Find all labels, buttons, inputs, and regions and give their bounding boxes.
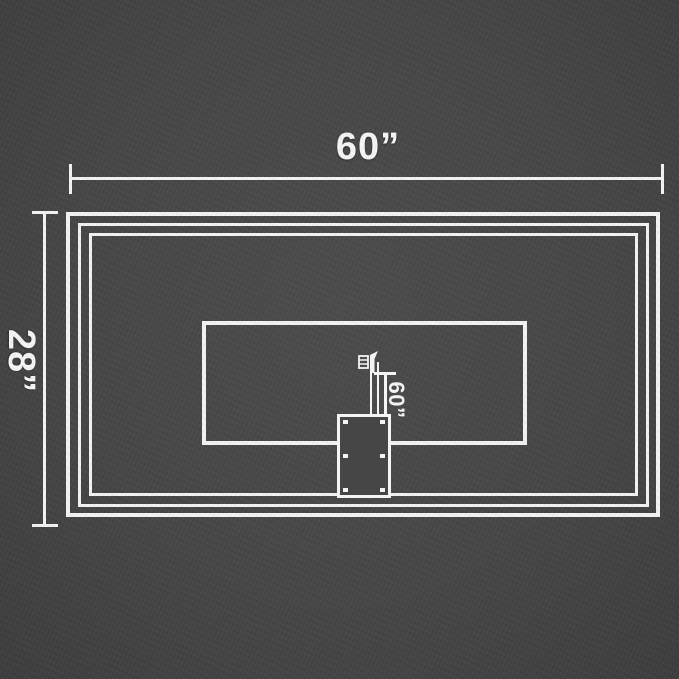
bolt-hole bbox=[343, 420, 348, 424]
bolt-hole bbox=[343, 454, 348, 458]
width-dimension-line bbox=[69, 164, 664, 194]
pole-dimension-line bbox=[384, 372, 387, 416]
height-dimension-bar bbox=[43, 214, 46, 524]
width-dimension-bar bbox=[72, 177, 661, 180]
diagram-canvas: 60” 28” 60” bbox=[0, 0, 679, 679]
bolt-hole bbox=[343, 488, 348, 492]
bolt-hole bbox=[380, 420, 385, 424]
bolt-hole bbox=[380, 454, 385, 458]
height-dimension-line bbox=[32, 211, 58, 527]
bolt-hole bbox=[380, 488, 385, 492]
mount-bracket bbox=[337, 414, 391, 498]
width-dimension-label: 60” bbox=[288, 126, 448, 169]
